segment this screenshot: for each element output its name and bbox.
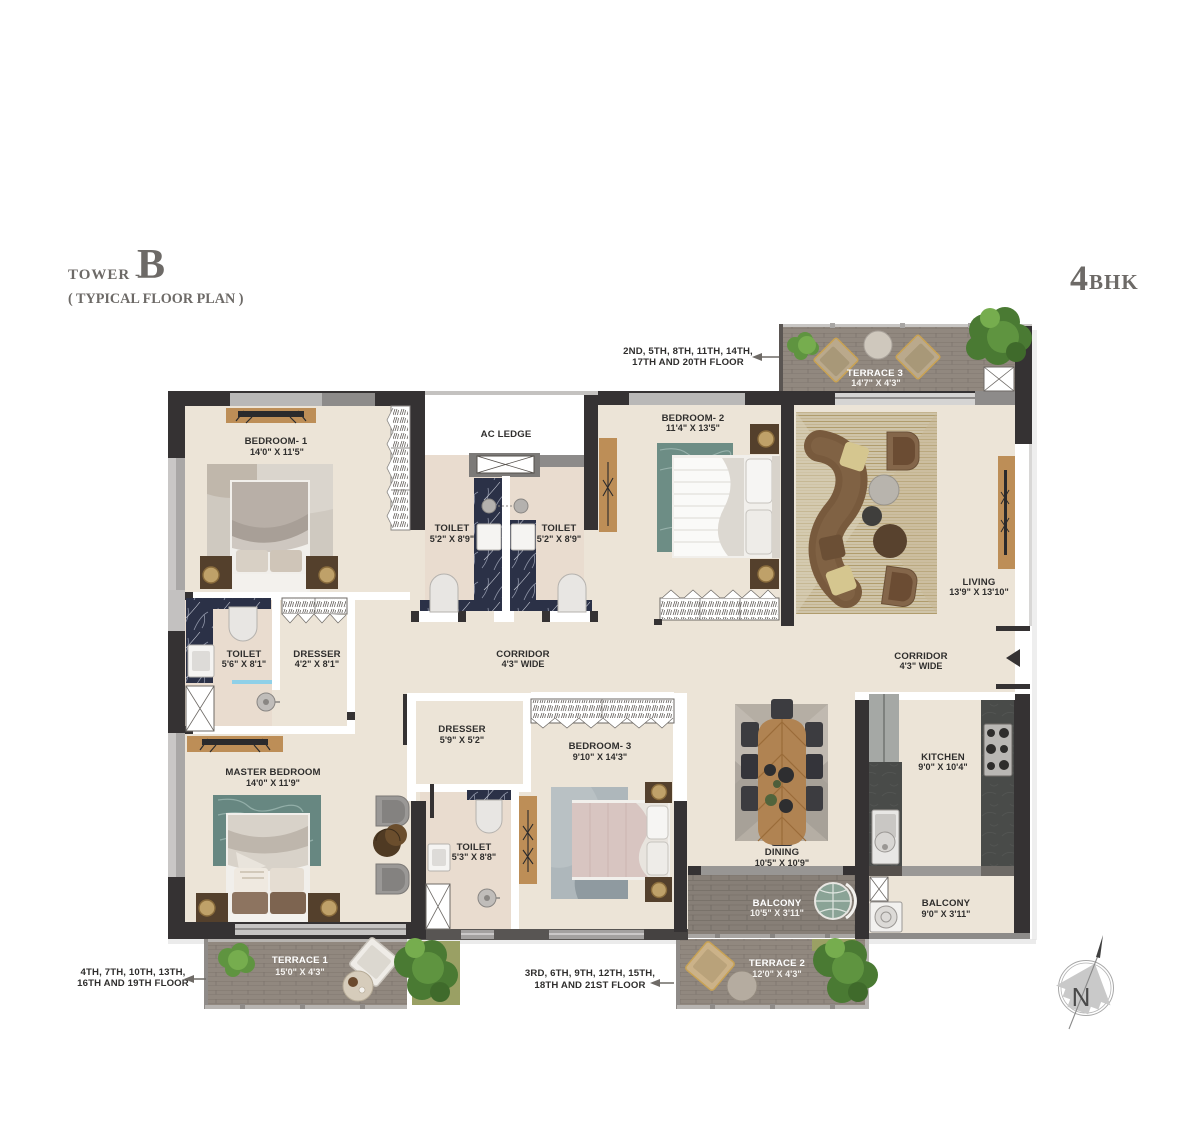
svg-text:TOILET: TOILET (435, 523, 470, 534)
svg-text:4'3" WIDE: 4'3" WIDE (502, 659, 545, 669)
svg-text:2ND, 5TH, 8TH, 11TH, 14TH,: 2ND, 5TH, 8TH, 11TH, 14TH, (623, 346, 753, 357)
svg-text:B: B (137, 242, 165, 288)
svg-text:4'2" X 8'1": 4'2" X 8'1" (295, 659, 339, 669)
svg-text:( TYPICAL FLOOR PLAN ): ( TYPICAL FLOOR PLAN ) (68, 291, 244, 307)
svg-text:DRESSER: DRESSER (438, 724, 485, 735)
svg-text:18TH AND 21ST FLOOR: 18TH AND 21ST FLOOR (534, 980, 645, 991)
svg-text:10'5" X 3'11": 10'5" X 3'11" (750, 908, 804, 918)
svg-text:BALCONY: BALCONY (922, 898, 971, 909)
svg-text:AC LEDGE: AC LEDGE (481, 429, 532, 440)
svg-text:TERRACE 2: TERRACE 2 (749, 958, 805, 969)
svg-text:14'0" X 11'5": 14'0" X 11'5" (250, 447, 304, 457)
svg-text:17TH AND 20TH FLOOR: 17TH AND 20TH FLOOR (632, 357, 744, 368)
svg-text:10'5" X 10'9": 10'5" X 10'9" (755, 858, 810, 868)
svg-text:4TH, 7TH, 10TH, 13TH,: 4TH, 7TH, 10TH, 13TH, (81, 967, 186, 978)
svg-text:TOWER -: TOWER - (68, 267, 141, 283)
svg-text:5'2" X 8'9": 5'2" X 8'9" (430, 534, 474, 544)
svg-text:BEDROOM- 1: BEDROOM- 1 (245, 436, 308, 447)
svg-text:MASTER BEDROOM: MASTER BEDROOM (225, 767, 320, 778)
svg-text:5'2" X 8'9": 5'2" X 8'9" (537, 534, 581, 544)
svg-text:TOILET: TOILET (542, 523, 577, 534)
svg-text:BEDROOM- 3: BEDROOM- 3 (569, 741, 632, 752)
svg-text:16TH AND 19TH FLOOR: 16TH AND 19TH FLOOR (77, 978, 189, 989)
svg-text:TERRACE 1: TERRACE 1 (272, 955, 329, 966)
svg-text:N: N (1072, 982, 1091, 1012)
svg-text:14'0" X 11'9": 14'0" X 11'9" (246, 778, 300, 788)
svg-text:DINING: DINING (765, 847, 799, 858)
svg-text:15'0" X 4'3": 15'0" X 4'3" (275, 967, 324, 977)
svg-text:12'0" X 4'3": 12'0" X 4'3" (752, 969, 801, 979)
svg-text:3RD, 6TH, 9TH, 12TH, 15TH,: 3RD, 6TH, 9TH, 12TH, 15TH, (525, 968, 655, 979)
svg-text:11'4" X 13'5": 11'4" X 13'5" (666, 423, 720, 433)
svg-text:9'0" X 3'11": 9'0" X 3'11" (922, 909, 971, 919)
svg-text:5'9" X 5'2": 5'9" X 5'2" (440, 735, 484, 745)
svg-text:14'7" X 4'3": 14'7" X 4'3" (851, 378, 900, 388)
svg-text:4: 4 (1070, 258, 1088, 298)
svg-text:4'3" WIDE: 4'3" WIDE (900, 661, 943, 671)
svg-text:13'9" X 13'10": 13'9" X 13'10" (949, 587, 1009, 597)
svg-text:9'10" X 14'3": 9'10" X 14'3" (573, 752, 628, 762)
svg-text:5'3" X 8'8": 5'3" X 8'8" (452, 852, 496, 862)
svg-text:BHK: BHK (1089, 270, 1139, 294)
svg-text:5'6" X 8'1": 5'6" X 8'1" (222, 659, 266, 669)
svg-text:9'0" X 10'4": 9'0" X 10'4" (918, 762, 967, 772)
